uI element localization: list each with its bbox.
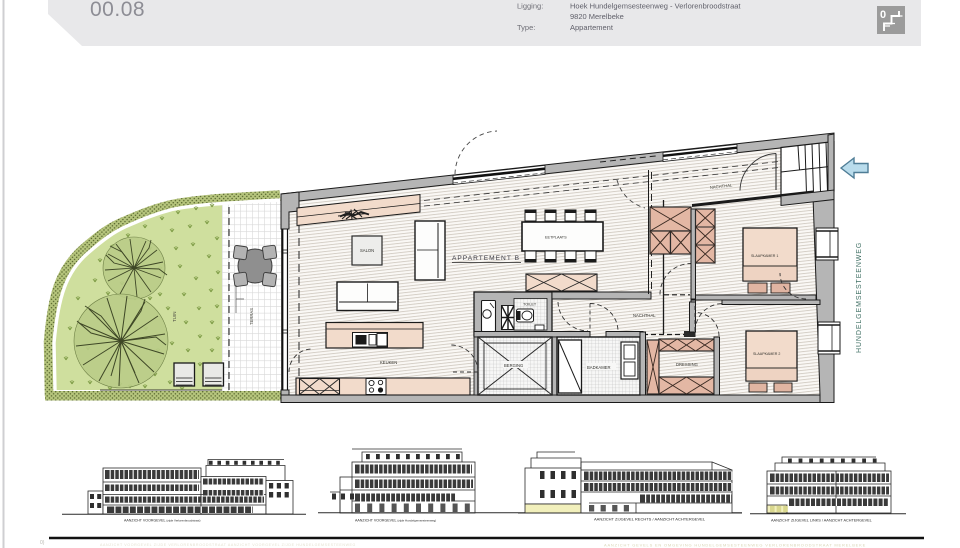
svg-text:SLAAPKAMER 1: SLAAPKAMER 1	[751, 254, 778, 258]
svg-text:TUIN: TUIN	[172, 312, 177, 323]
svg-text:DRESSING: DRESSING	[676, 362, 698, 367]
svg-text:HUNDELGEMSESTEENWEG: HUNDELGEMSESTEENWEG	[856, 242, 863, 353]
svg-text:Ligging:: Ligging:	[517, 2, 543, 11]
svg-text:AANZICHT GEVELS EN OMGEVING HU: AANZICHT GEVELS EN OMGEVING HUNDELGEMSES…	[604, 543, 866, 548]
svg-text:AANZICHT VOORGEVEL (zijde Verl: AANZICHT VOORGEVEL (zijde Verlorenbroods…	[124, 519, 200, 523]
svg-text:APPARTEMENT B: APPARTEMENT B	[452, 255, 520, 262]
svg-text:Hoek Hundelgemsesteenweg - Ver: Hoek Hundelgemsesteenweg - Verlorenbrood…	[570, 2, 741, 11]
svg-text:TERRAS: TERRAS	[249, 308, 254, 325]
svg-text:Appartement: Appartement	[570, 23, 614, 32]
svg-text:0): 0)	[40, 540, 45, 546]
svg-text:AANZICHT ZIJGEVEL RECHTS / AAN: AANZICHT ZIJGEVEL RECHTS / AANZICHT ACHT…	[594, 517, 706, 522]
svg-text:TOILET: TOILET	[523, 303, 537, 307]
svg-text:EETPLAATS: EETPLAATS	[545, 236, 567, 240]
svg-text:AANZICHT VOORGEVEL ZIJDE VERLO: AANZICHT VOORGEVEL ZIJDE VERLORENBROODST…	[100, 543, 356, 547]
svg-text:AANZICHT ZIJGEVEL LINKS / AANZ: AANZICHT ZIJGEVEL LINKS / AANZICHT ACHTE…	[771, 519, 872, 523]
svg-text:SALON: SALON	[360, 248, 374, 253]
svg-text:NACHTHAL: NACHTHAL	[633, 313, 656, 318]
svg-text:BADKAMER: BADKAMER	[587, 365, 611, 370]
svg-text:0: 0	[880, 9, 886, 21]
svg-text:9820 Merelbeke: 9820 Merelbeke	[570, 12, 624, 21]
svg-text:BERGING: BERGING	[504, 363, 523, 368]
svg-text:SLAAPKAMER 2: SLAAPKAMER 2	[753, 352, 780, 356]
svg-text:00.08: 00.08	[90, 0, 145, 21]
svg-text:AANZICHT VOORGEVEL (zijde Hund: AANZICHT VOORGEVEL (zijde Hundelgemseste…	[355, 519, 436, 523]
svg-text:Type:: Type:	[517, 23, 535, 32]
svg-text:KEUKEN: KEUKEN	[380, 360, 397, 365]
